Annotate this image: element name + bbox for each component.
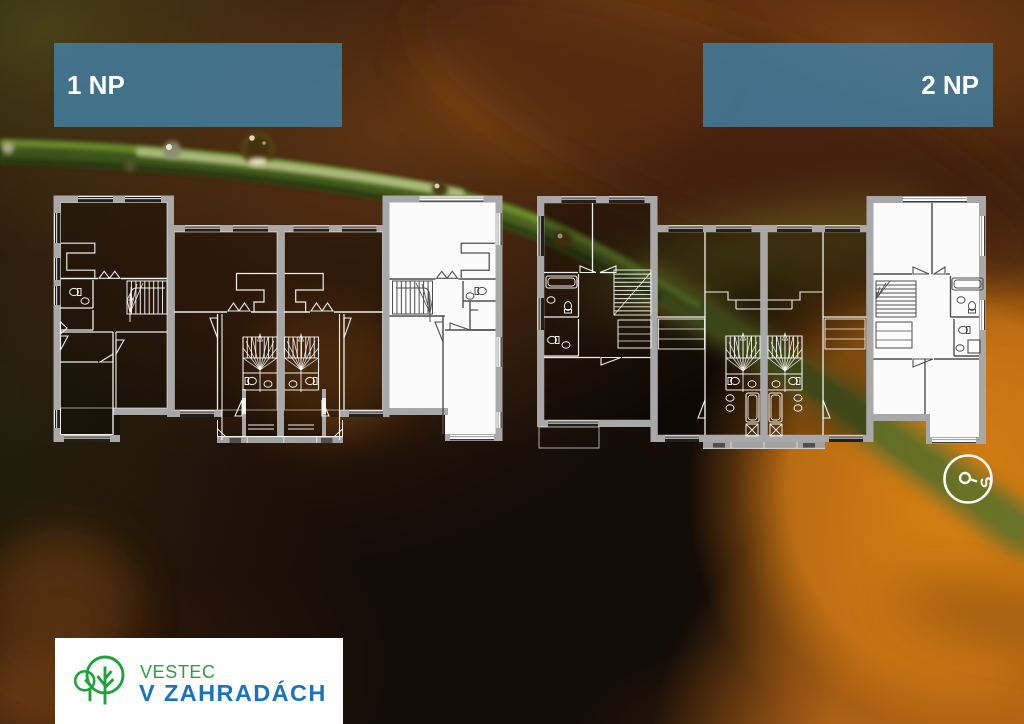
svg-text:V ZAHRADÁCH: V ZAHRADÁCH [139,679,327,706]
svg-text:VESTEC: VESTEC [140,662,216,682]
svg-text:S: S [976,475,995,489]
